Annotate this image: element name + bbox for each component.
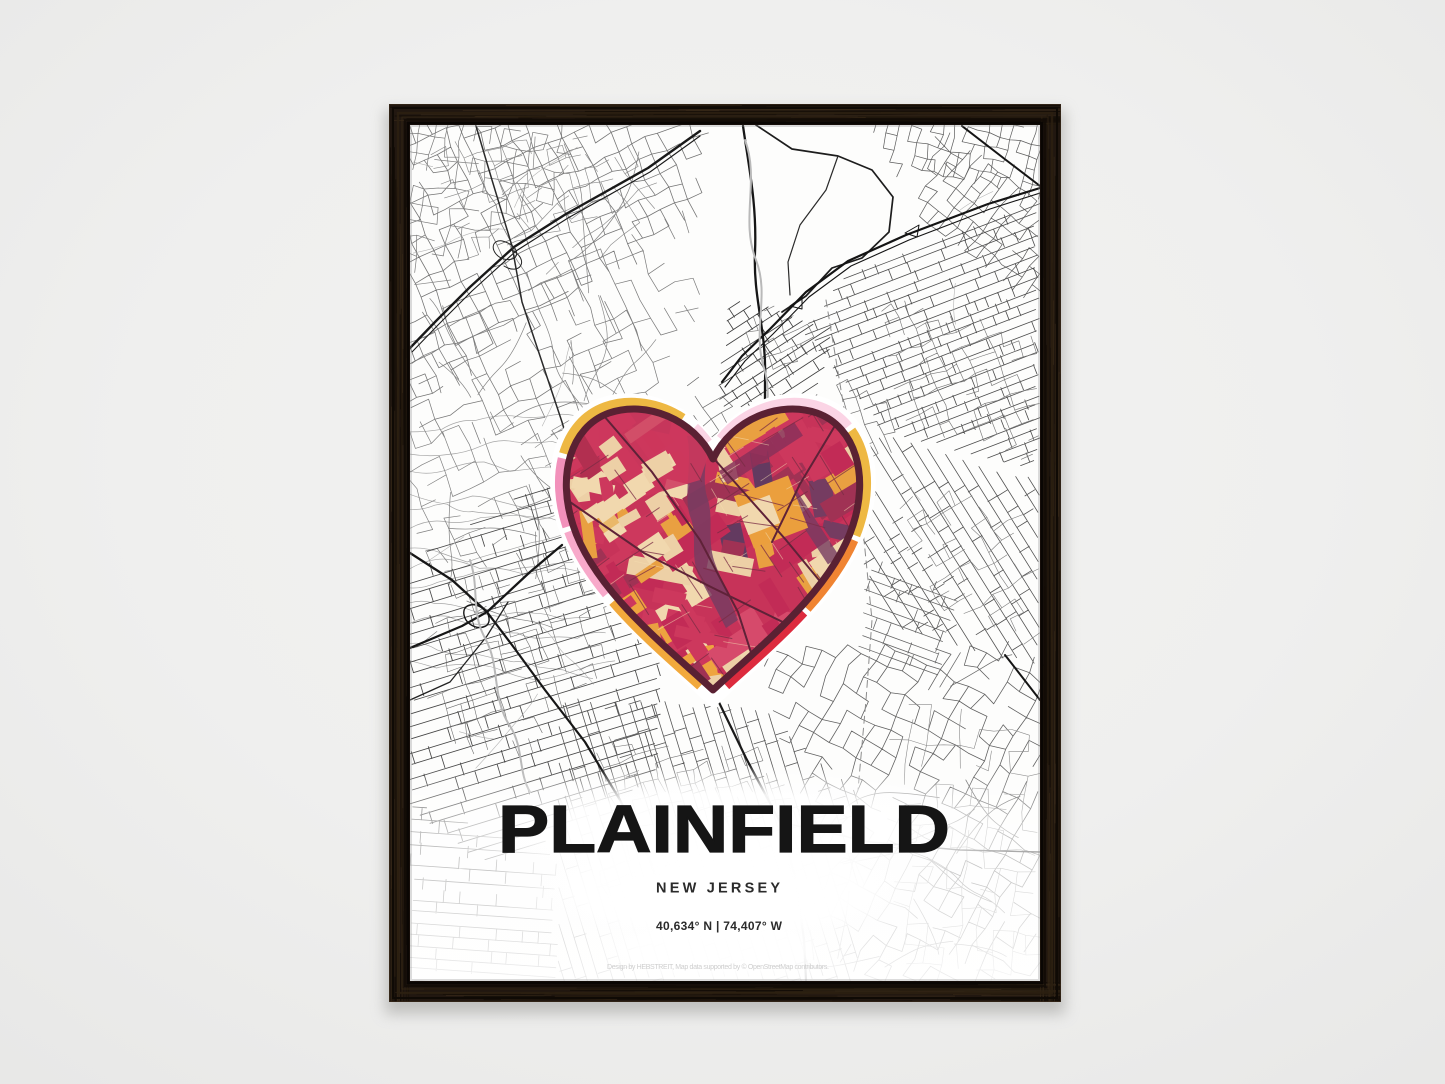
svg-text:NEW JERSEY: NEW JERSEY	[656, 881, 780, 897]
svg-text:40,634° N | 74,407° W: 40,634° N | 74,407° W	[656, 919, 783, 933]
svg-text:PLAINFIELD: PLAINFIELD	[498, 793, 950, 867]
svg-text:Design by HEBSTREIT, Map data: Design by HEBSTREIT, Map data supported …	[607, 963, 829, 971]
